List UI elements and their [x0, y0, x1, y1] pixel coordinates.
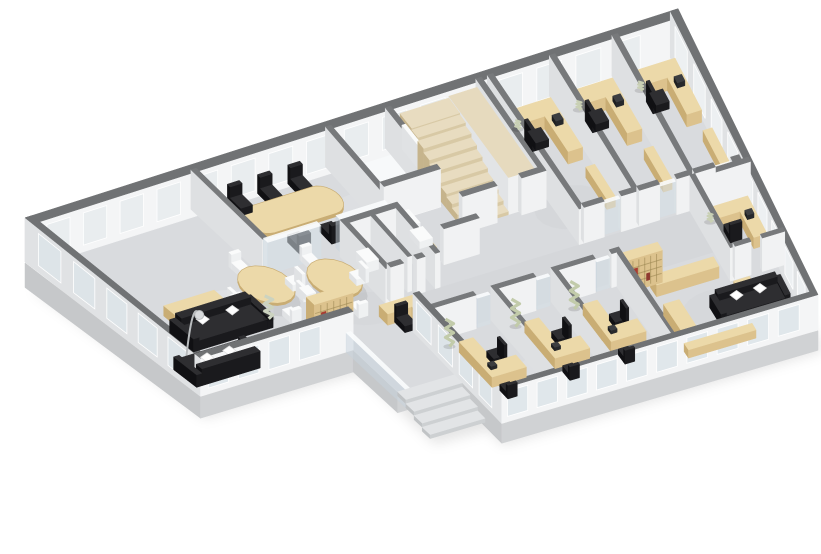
corridor-wall-n-3 — [637, 180, 660, 227]
wc-wall-south-b — [414, 253, 426, 295]
office-se-glass-door-3 — [595, 255, 610, 291]
corridor-wall-n-1 — [581, 197, 604, 243]
office-se-glass-door-2 — [535, 274, 550, 310]
floorplan-render: 3D isometric office floor plan cutaway r… — [0, 0, 821, 554]
office-corner-wall-s-b — [760, 227, 785, 271]
corridor-wall-n-4 — [674, 171, 689, 215]
stair-wall-south-b — [518, 166, 546, 215]
corridor-wall-n-2 — [619, 188, 635, 232]
office-corner-wall-s-a — [733, 238, 751, 280]
wc-wall-south-a — [387, 259, 404, 302]
office-se-glass-door-1 — [475, 292, 490, 328]
corridor-wall-s-4 — [609, 248, 617, 287]
office-floorplan-3d: 3D isometric office floor plan cutaway r… — [0, 0, 821, 554]
